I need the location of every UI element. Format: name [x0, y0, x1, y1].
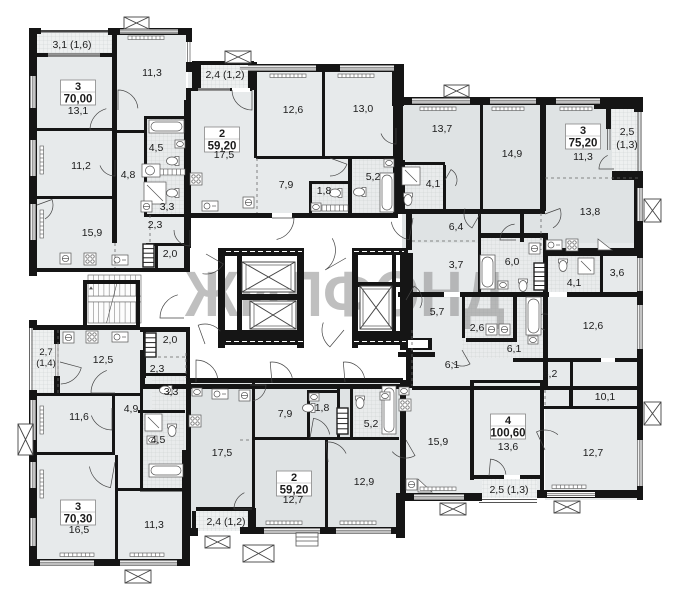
svg-text:4,1: 4,1	[426, 178, 441, 190]
svg-text:(1,4): (1,4)	[36, 358, 56, 369]
svg-text:15,9: 15,9	[82, 227, 103, 239]
svg-text:1,8: 1,8	[317, 185, 332, 197]
svg-text:12,6: 12,6	[583, 320, 604, 332]
svg-text:2,7: 2,7	[39, 347, 52, 358]
svg-text:14,9: 14,9	[502, 148, 523, 160]
svg-text:11,3: 11,3	[142, 67, 162, 79]
svg-text:2,0: 2,0	[163, 248, 178, 260]
svg-text:5,7: 5,7	[430, 306, 445, 318]
svg-text:12,5: 12,5	[93, 354, 114, 366]
svg-text:4,1: 4,1	[567, 277, 582, 289]
svg-text:13,6: 13,6	[498, 441, 519, 453]
svg-text:11,2: 11,2	[71, 160, 91, 172]
svg-text:4: 4	[505, 415, 512, 427]
svg-text:12,6: 12,6	[283, 104, 304, 116]
svg-text:13,1: 13,1	[68, 105, 89, 117]
svg-text:7,9: 7,9	[278, 408, 293, 420]
svg-text:3,7: 3,7	[449, 259, 464, 271]
svg-text:3: 3	[580, 125, 586, 137]
svg-text:3,3: 3,3	[160, 201, 175, 213]
svg-text:70,00: 70,00	[64, 94, 93, 106]
svg-text:3: 3	[75, 81, 81, 93]
svg-text:6,4: 6,4	[449, 221, 464, 233]
svg-text:2,5 (1,3): 2,5 (1,3)	[489, 484, 528, 496]
svg-text:5,2: 5,2	[364, 418, 379, 430]
svg-text:75,20: 75,20	[569, 138, 598, 150]
svg-text:2,4 (1,2): 2,4 (1,2)	[205, 69, 244, 81]
svg-text:2,5: 2,5	[620, 126, 635, 138]
svg-text:3,3: 3,3	[164, 386, 179, 398]
svg-text:6,2: 6,2	[543, 368, 558, 380]
svg-text:11,3: 11,3	[573, 151, 593, 163]
svg-text:11,6: 11,6	[69, 411, 89, 423]
svg-text:10,1: 10,1	[595, 391, 616, 403]
svg-text:2: 2	[219, 128, 225, 140]
svg-text:2,0: 2,0	[163, 334, 178, 346]
svg-text:11,3: 11,3	[144, 519, 164, 531]
svg-text:17,5: 17,5	[212, 447, 233, 459]
svg-text:13,8: 13,8	[580, 206, 601, 218]
svg-text:4,9: 4,9	[124, 403, 139, 415]
svg-text:6,0: 6,0	[505, 256, 520, 268]
svg-text:13,0: 13,0	[353, 103, 374, 115]
svg-text:13,7: 13,7	[432, 123, 453, 135]
svg-text:15,9: 15,9	[428, 436, 449, 448]
svg-text:6,1: 6,1	[445, 359, 460, 371]
svg-text:2,3: 2,3	[150, 363, 165, 375]
svg-text:100,60: 100,60	[490, 428, 525, 440]
svg-text:4,5: 4,5	[151, 434, 166, 446]
svg-text:5,2: 5,2	[366, 171, 381, 183]
svg-text:17,5: 17,5	[214, 149, 235, 161]
svg-text:6,1: 6,1	[507, 343, 522, 355]
svg-text:2,3: 2,3	[148, 219, 163, 231]
svg-text:2,6: 2,6	[470, 322, 485, 334]
svg-text:16,5: 16,5	[69, 524, 90, 536]
svg-text:12,7: 12,7	[583, 447, 604, 459]
svg-text:3,1 (1,6): 3,1 (1,6)	[52, 39, 91, 51]
svg-text:3: 3	[75, 501, 81, 513]
svg-text:3,6: 3,6	[610, 267, 625, 279]
svg-text:2,4 (1,2): 2,4 (1,2)	[206, 516, 245, 528]
svg-text:7,9: 7,9	[279, 179, 294, 191]
svg-text:4,8: 4,8	[121, 169, 136, 181]
svg-text:12,7: 12,7	[283, 494, 304, 506]
svg-text:2: 2	[291, 472, 297, 484]
svg-text:4,5: 4,5	[149, 142, 164, 154]
svg-text:12,9: 12,9	[354, 476, 375, 488]
svg-text:1,8: 1,8	[315, 402, 330, 414]
svg-text:(1,3): (1,3)	[616, 139, 638, 151]
